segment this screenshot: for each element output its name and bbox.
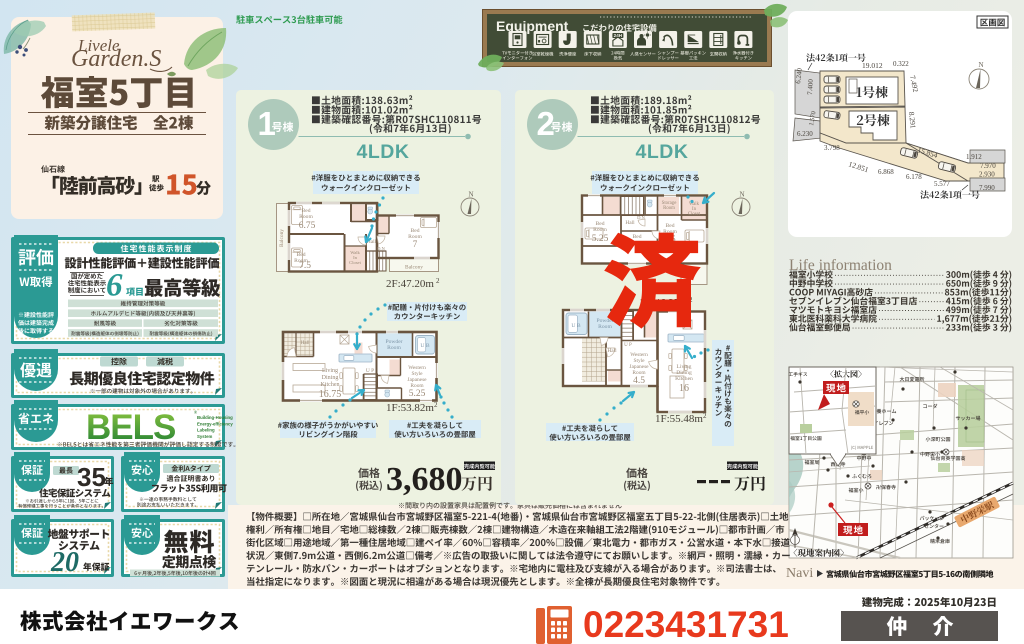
svg-text:16.75: 16.75: [319, 389, 342, 400]
svg-text:19.012: 19.012: [862, 61, 883, 70]
svg-text:1.912: 1.912: [966, 153, 982, 161]
svg-text:5.577: 5.577: [934, 180, 950, 188]
svg-text:6.178: 6.178: [906, 173, 922, 181]
svg-text:U B: U B: [420, 343, 429, 349]
svg-text:Balcony: Balcony: [279, 229, 285, 247]
svg-text:2: 2: [537, 105, 555, 142]
svg-text:20: 20: [50, 547, 79, 578]
svg-text:2: 2: [436, 277, 440, 285]
svg-text:2: 2: [703, 412, 707, 420]
svg-text:0223431731: 0223431731: [583, 604, 789, 644]
svg-text:Building-Housing: Building-Housing: [197, 415, 233, 420]
svg-text:5.25: 5.25: [592, 234, 609, 244]
svg-text:Navi: Navi: [786, 566, 813, 581]
svg-text:Hall: Hall: [607, 348, 617, 354]
svg-text:4LDK: 4LDK: [357, 141, 410, 163]
svg-text:System: System: [197, 434, 212, 439]
svg-text:16: 16: [679, 383, 689, 394]
svg-text:6.868: 6.868: [878, 168, 894, 176]
svg-text:7.970: 7.970: [980, 162, 996, 170]
svg-text:N: N: [468, 191, 473, 199]
svg-text:Hall: Hall: [300, 340, 310, 346]
svg-text:Room: Room: [299, 214, 313, 220]
svg-text:7: 7: [413, 239, 418, 249]
svg-text:U P: U P: [366, 368, 374, 374]
svg-text:7.5: 7.5: [299, 261, 311, 271]
svg-text:8.291: 8.291: [907, 111, 918, 129]
svg-text:7.400: 7.400: [806, 78, 815, 95]
svg-text:Garden.S: Garden.S: [71, 46, 161, 72]
svg-text:7.990: 7.990: [979, 184, 995, 192]
svg-text:6: 6: [106, 268, 123, 304]
svg-text:N: N: [739, 191, 744, 199]
svg-text:Equipment: Equipment: [496, 18, 569, 34]
svg-text:Hall: Hall: [625, 220, 635, 226]
svg-text:Room: Room: [598, 324, 612, 330]
svg-text:Closet: Closet: [688, 212, 701, 217]
svg-text:3,680: 3,680: [386, 461, 463, 498]
svg-text:BELS: BELS: [86, 408, 175, 447]
svg-text:4LDK: 4LDK: [636, 141, 689, 163]
svg-text:D.N: D.N: [377, 246, 385, 251]
svg-text:1F:55.48m: 1F:55.48m: [655, 413, 703, 425]
svg-text:6.75: 6.75: [299, 221, 316, 231]
svg-text:Dining: Dining: [322, 375, 339, 381]
svg-text:Room: Room: [387, 345, 401, 351]
svg-text:Room: Room: [593, 227, 607, 233]
svg-text:Labeling: Labeling: [197, 428, 215, 433]
svg-text:2F:47.20m: 2F:47.20m: [386, 278, 434, 290]
svg-text:0.322: 0.322: [893, 60, 909, 68]
svg-text:1: 1: [258, 105, 276, 142]
svg-text:Living: Living: [322, 368, 338, 374]
svg-text:U P: U P: [624, 343, 632, 348]
svg-text:2: 2: [434, 401, 438, 409]
svg-text:N: N: [978, 61, 983, 69]
svg-text:5.25: 5.25: [409, 389, 426, 399]
svg-text:Energy-efficiency: Energy-efficiency: [197, 421, 233, 426]
svg-text:Closet: Closet: [349, 260, 361, 265]
svg-text:3.798: 3.798: [824, 144, 840, 152]
svg-text:Kitchen: Kitchen: [675, 376, 693, 382]
svg-text:1F:53.82m: 1F:53.82m: [386, 402, 434, 414]
svg-text:Kitchen: Kitchen: [321, 382, 340, 388]
svg-text:U B: U B: [571, 323, 580, 329]
svg-text:Balcony: Balcony: [405, 265, 423, 271]
svg-text:35: 35: [77, 462, 106, 492]
svg-text:6.230: 6.230: [797, 130, 813, 138]
svg-text:Room: Room: [663, 206, 675, 211]
svg-text:2.930: 2.930: [979, 171, 995, 179]
svg-text:4.5: 4.5: [633, 376, 645, 386]
